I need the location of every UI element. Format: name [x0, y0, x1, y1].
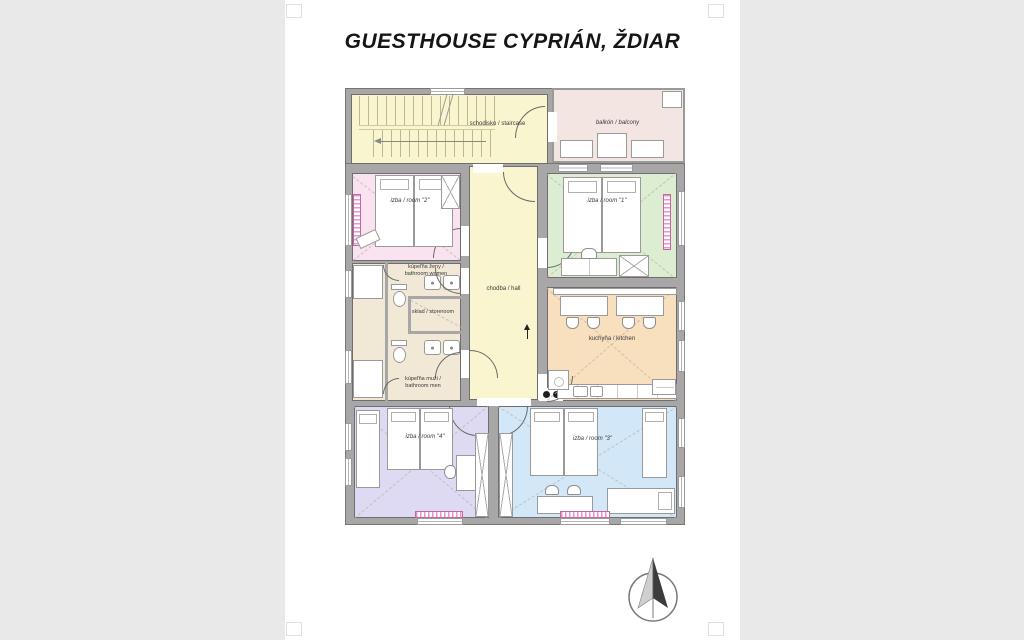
radiator	[560, 511, 610, 518]
corner-mark	[286, 4, 302, 18]
window	[345, 270, 352, 298]
page-title: GUESTHOUSE CYPRIÁN, ŽDIAR	[285, 30, 740, 54]
door-opening	[461, 350, 469, 378]
corner-mark	[708, 4, 724, 18]
pillow	[658, 492, 672, 510]
chair	[566, 317, 579, 329]
floor-plan: schodisko / staircase balkón / balcony i…	[345, 88, 685, 525]
label-room2: izba / room "2"	[370, 198, 450, 205]
partition-wall	[408, 331, 461, 334]
corner-mark	[286, 622, 302, 636]
fridge-line	[656, 387, 674, 388]
pillow	[424, 412, 449, 422]
window	[678, 418, 685, 448]
fridge	[652, 379, 676, 395]
kitchen-sink	[590, 386, 603, 397]
window	[678, 340, 685, 372]
bed	[607, 488, 675, 514]
window	[678, 191, 685, 246]
chair	[581, 248, 597, 259]
desk	[561, 258, 617, 276]
window	[345, 458, 352, 486]
window	[560, 518, 610, 525]
pillow	[568, 181, 597, 193]
bed	[642, 408, 667, 478]
label-bathroom-men: kúpeľňa muži / bathroom men	[387, 376, 459, 389]
table	[560, 296, 608, 316]
door-opening	[548, 112, 557, 142]
bed	[563, 177, 602, 253]
label-room1: izba / room "1"	[567, 198, 647, 205]
radiator	[663, 194, 671, 250]
label-hall: chodba / hall	[471, 286, 536, 293]
balcony-furniture	[597, 133, 627, 158]
chair	[444, 465, 456, 479]
chair	[545, 485, 559, 495]
toilet-tank	[391, 340, 407, 346]
label-kitchen: kuchyňa / kitchen	[577, 336, 647, 343]
label-staircase: schodisko / staircase	[450, 121, 545, 128]
kitchen-sink	[573, 386, 588, 397]
label-storeroom: sklad / storeroom	[405, 309, 461, 316]
radiator	[415, 511, 463, 518]
chair	[567, 485, 581, 495]
washing-machine	[548, 370, 569, 390]
window	[678, 301, 685, 331]
pillow	[645, 412, 664, 422]
pillow	[534, 412, 560, 422]
window	[345, 194, 352, 246]
balcony-corner-post	[662, 91, 682, 108]
label-line: kúpeľňa muži /	[405, 376, 441, 382]
sink	[424, 340, 441, 355]
window	[558, 164, 588, 172]
wardrobe	[619, 255, 649, 277]
table	[616, 296, 664, 316]
pillow	[391, 412, 416, 422]
bed	[356, 410, 380, 488]
window	[678, 476, 685, 508]
window	[620, 518, 667, 525]
screenshot-stage: GUESTHOUSE CYPRIÁN, ŽDIAR	[0, 0, 1024, 640]
chair	[622, 317, 635, 329]
balcony-furniture	[560, 140, 593, 158]
stair-arrow-icon	[374, 138, 381, 144]
corner-mark	[708, 622, 724, 636]
label-balcony: balkón / balcony	[575, 120, 660, 127]
bed	[375, 175, 414, 247]
toilet-men	[393, 347, 406, 363]
toilet-tank	[391, 284, 407, 290]
window	[600, 164, 633, 172]
kitchen-bench	[553, 288, 677, 295]
partition-wall	[408, 296, 461, 299]
north-arrow-icon	[618, 550, 688, 635]
chair	[587, 317, 600, 329]
pillow	[607, 181, 636, 193]
label-line: bathroom men	[405, 383, 440, 389]
pillow	[380, 179, 409, 190]
shower-women	[353, 265, 383, 299]
stair-flight-lower	[373, 128, 495, 157]
wardrobe-column	[475, 433, 489, 517]
window	[345, 350, 352, 384]
door-opening	[461, 268, 469, 294]
window	[417, 518, 463, 525]
door-opening	[473, 164, 503, 173]
window	[345, 423, 352, 451]
pillow	[359, 414, 377, 424]
balcony-furniture	[631, 140, 664, 158]
door-opening	[461, 226, 469, 256]
door-opening	[477, 398, 531, 406]
pillow	[568, 412, 594, 422]
label-line: bathroom women	[405, 271, 448, 277]
label-room3: izba / room "3"	[550, 436, 635, 443]
label-room4: izba / room "4"	[385, 434, 465, 441]
chair	[643, 317, 656, 329]
toilet-women	[393, 291, 406, 307]
label-bathroom-women: kúpeľňa ženy / bathroom women	[390, 264, 462, 277]
door-opening	[538, 238, 547, 268]
stair-direction-line	[381, 141, 486, 142]
hall-arrow-stem	[527, 330, 528, 339]
bed	[602, 177, 641, 253]
label-line: kúpeľňa ženy /	[408, 264, 444, 270]
shower-men	[353, 360, 383, 398]
washer-door-icon	[554, 377, 564, 387]
wardrobe-column	[499, 433, 513, 517]
